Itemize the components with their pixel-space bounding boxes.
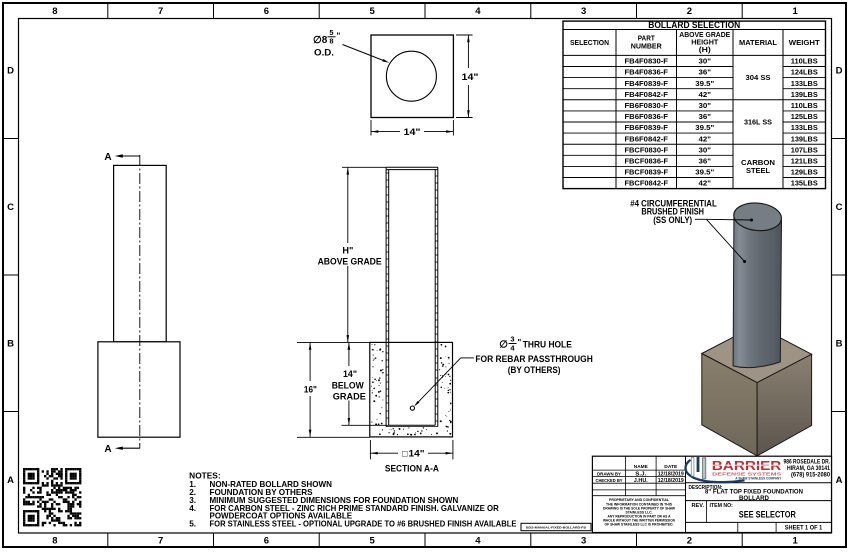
svg-text:A: A — [7, 475, 14, 486]
svg-text:O.D.: O.D. — [314, 47, 334, 58]
svg-text:D: D — [836, 66, 843, 77]
svg-text:12/18/2019: 12/18/2019 — [658, 478, 684, 484]
svg-text:14": 14" — [409, 449, 425, 459]
svg-text:∅8: ∅8 — [313, 35, 328, 46]
svg-text:316L SS: 316L SS — [744, 118, 772, 127]
svg-text:FB6F0842-F: FB6F0842-F — [625, 134, 669, 143]
svg-text:(678) 915-2080: (678) 915-2080 — [791, 472, 831, 478]
svg-text:A: A — [836, 475, 843, 486]
svg-text:SHEET 1 OF 1: SHEET 1 OF 1 — [785, 525, 823, 531]
svg-text:BELOW: BELOW — [332, 381, 364, 391]
svg-text:39.5": 39.5" — [695, 123, 715, 132]
svg-text:3: 3 — [581, 6, 586, 17]
svg-text:FOR STAINLESS STEEL - OPTIONAL: FOR STAINLESS STEEL - OPTIONAL UPGRADE T… — [210, 519, 517, 528]
svg-text:A SHAW STAINLESS COMPANY: A SHAW STAINLESS COMPANY — [735, 477, 782, 481]
svg-text:CHECKED BY: CHECKED BY — [596, 478, 623, 483]
svg-text:4.: 4. — [189, 504, 196, 513]
svg-text:4: 4 — [475, 6, 481, 17]
svg-text:∅: ∅ — [499, 340, 508, 351]
svg-text:MATERIAL: MATERIAL — [739, 38, 778, 47]
svg-text:2: 2 — [687, 536, 692, 547]
svg-text:4: 4 — [475, 536, 481, 547]
svg-text:8: 8 — [329, 37, 333, 46]
svg-text:3: 3 — [581, 536, 586, 547]
svg-text:129LBS: 129LBS — [791, 168, 818, 177]
svg-text:30": 30" — [699, 57, 712, 66]
svg-text:107LBS: 107LBS — [791, 145, 818, 154]
svg-text:FBCF0839-F: FBCF0839-F — [625, 168, 669, 177]
svg-text:": " — [518, 338, 522, 347]
svg-text:FB4F0836-F: FB4F0836-F — [625, 68, 669, 77]
svg-text:ABOVE GRADE: ABOVE GRADE — [318, 257, 382, 267]
svg-text:14": 14" — [462, 72, 479, 82]
svg-text:": " — [337, 32, 341, 41]
svg-text:304 SS: 304 SS — [746, 73, 771, 82]
svg-text:2: 2 — [687, 6, 692, 17]
svg-text:SELECTION: SELECTION — [570, 38, 609, 47]
svg-text:14": 14" — [343, 369, 357, 379]
svg-text:DATE: DATE — [664, 464, 677, 469]
svg-text:139LBS: 139LBS — [791, 134, 818, 143]
svg-text:FOR REBAR PASSTHROUGH: FOR REBAR PASSTHROUGH — [475, 354, 592, 364]
svg-text:39.5": 39.5" — [695, 168, 715, 177]
svg-text:B: B — [836, 339, 843, 350]
svg-text:1: 1 — [793, 536, 799, 547]
svg-text:(BY OTHERS): (BY OTHERS) — [508, 365, 561, 375]
svg-text:133LBS: 133LBS — [791, 79, 818, 88]
svg-text:36": 36" — [699, 112, 712, 121]
svg-text:BOLLARD: BOLLARD — [739, 495, 769, 502]
svg-text:ITEM NO:: ITEM NO: — [710, 503, 734, 509]
svg-text:3: 3 — [510, 335, 514, 344]
svg-text:STEEL: STEEL — [746, 166, 770, 175]
svg-text:FB4F0839-F: FB4F0839-F — [625, 79, 669, 88]
svg-text:5: 5 — [370, 536, 376, 547]
svg-text:36": 36" — [699, 68, 712, 77]
svg-text:133LBS: 133LBS — [791, 123, 818, 132]
svg-text:(SS ONLY): (SS ONLY) — [653, 215, 692, 225]
svg-text:125LBS: 125LBS — [791, 112, 818, 121]
svg-text:GRADE: GRADE — [333, 392, 366, 402]
svg-text:C: C — [7, 202, 14, 213]
svg-text:16": 16" — [304, 385, 317, 395]
svg-text:FB4F0830-F: FB4F0830-F — [625, 57, 669, 66]
svg-text:OF SHAW STAINLESS LLC IS PROHI: OF SHAW STAINLESS LLC IS PROHIBITED. — [605, 523, 674, 527]
svg-text:6: 6 — [264, 536, 269, 547]
svg-text:FB4F0842-F: FB4F0842-F — [625, 90, 669, 99]
svg-text:30": 30" — [699, 145, 712, 154]
svg-text:42": 42" — [699, 134, 712, 143]
svg-text:30": 30" — [699, 101, 712, 110]
svg-text:BOLLARD SELECTION: BOLLARD SELECTION — [648, 20, 740, 30]
svg-text:SEE SELECTOR: SEE SELECTOR — [739, 510, 796, 520]
svg-text:12/18/2019: 12/18/2019 — [658, 472, 684, 478]
svg-text:D: D — [7, 66, 14, 77]
svg-text:A: A — [104, 444, 111, 455]
svg-text:124LBS: 124LBS — [791, 68, 818, 77]
svg-text:FB6F0839-F: FB6F0839-F — [625, 123, 669, 132]
svg-text:42": 42" — [699, 90, 712, 99]
svg-text:H": H" — [342, 246, 353, 256]
svg-text:NAME: NAME — [634, 464, 648, 469]
svg-text:FBCF0836-F: FBCF0836-F — [625, 156, 669, 165]
svg-text:FBCF0830-F: FBCF0830-F — [625, 145, 669, 154]
svg-text:FBCF0842-F: FBCF0842-F — [625, 179, 669, 188]
svg-text:5.: 5. — [189, 519, 196, 528]
svg-text:FB6F0836-F: FB6F0836-F — [625, 112, 669, 121]
svg-text:135LBS: 135LBS — [791, 179, 818, 188]
svg-text:□: □ — [402, 449, 408, 459]
svg-text:110LBS: 110LBS — [791, 57, 818, 66]
svg-text:C: C — [836, 202, 843, 213]
svg-text:36": 36" — [699, 156, 712, 165]
svg-text:42": 42" — [699, 179, 712, 188]
svg-text:7: 7 — [158, 6, 163, 17]
svg-text:A: A — [104, 152, 111, 163]
svg-text:5: 5 — [370, 6, 376, 17]
svg-text:THRU HOLE: THRU HOLE — [523, 339, 572, 349]
svg-text:121LBS: 121LBS — [791, 156, 818, 165]
svg-text:BDS-MANUAL-FIXED-BOLLARD-FB: BDS-MANUAL-FIXED-BOLLARD-FB — [526, 525, 587, 529]
svg-text:39.5": 39.5" — [695, 79, 715, 88]
svg-text:SECTION A-A: SECTION A-A — [385, 463, 439, 473]
svg-text:NOTES:: NOTES: — [189, 471, 220, 480]
svg-text:B: B — [7, 339, 14, 350]
svg-text:S.J.: S.J. — [635, 472, 647, 478]
svg-text:(H): (H) — [699, 45, 712, 54]
svg-text:8: 8 — [52, 536, 57, 547]
svg-text:FB6F0830-F: FB6F0830-F — [625, 101, 669, 110]
svg-text:WEIGHT: WEIGHT — [789, 38, 821, 47]
svg-text:6: 6 — [264, 6, 269, 17]
svg-text:986 ROSEDALE DR.: 986 ROSEDALE DR. — [784, 460, 831, 466]
svg-text:J.HU.: J.HU. — [634, 478, 649, 484]
svg-text:110LBS: 110LBS — [791, 101, 818, 110]
svg-text:NUMBER: NUMBER — [631, 42, 663, 51]
svg-text:14": 14" — [404, 127, 421, 137]
svg-text:REV.: REV. — [692, 503, 705, 509]
svg-text:1: 1 — [793, 6, 799, 17]
svg-text:7: 7 — [158, 536, 163, 547]
svg-text:HIRAM, GA 30141: HIRAM, GA 30141 — [787, 466, 831, 472]
svg-text:DRAWN BY: DRAWN BY — [597, 471, 621, 476]
svg-text:8: 8 — [52, 6, 57, 17]
svg-text:139LBS: 139LBS — [791, 90, 818, 99]
